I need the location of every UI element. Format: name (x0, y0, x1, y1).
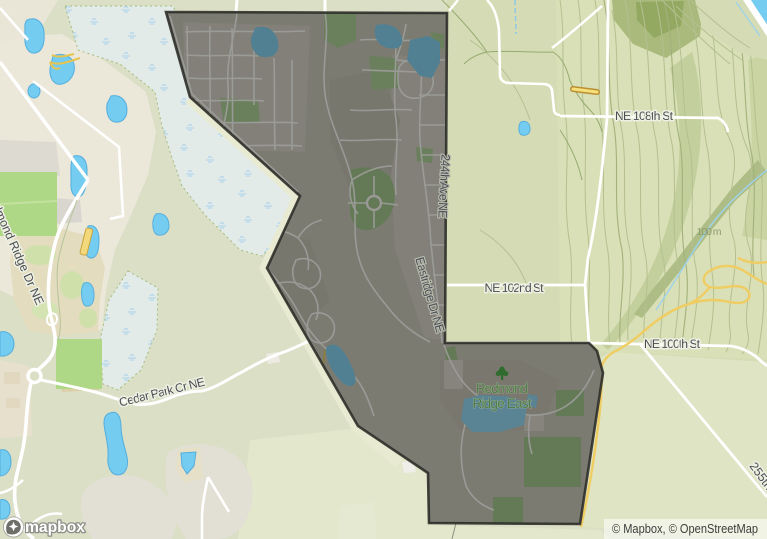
svg-text:© Mapbox, © OpenStreetMap: © Mapbox, © OpenStreetMap (612, 521, 758, 536)
svg-text:NE 100th St: NE 100th St (644, 337, 701, 351)
svg-text:NE 108th St: NE 108th St (615, 109, 674, 123)
svg-text:NE 102nd St: NE 102nd St (485, 281, 545, 295)
svg-text:Ridge East: Ridge East (473, 396, 532, 411)
svg-text:Redmond: Redmond (476, 381, 528, 396)
svg-text:100 m: 100 m (697, 226, 722, 238)
svg-text:mapbox: mapbox (25, 519, 85, 536)
